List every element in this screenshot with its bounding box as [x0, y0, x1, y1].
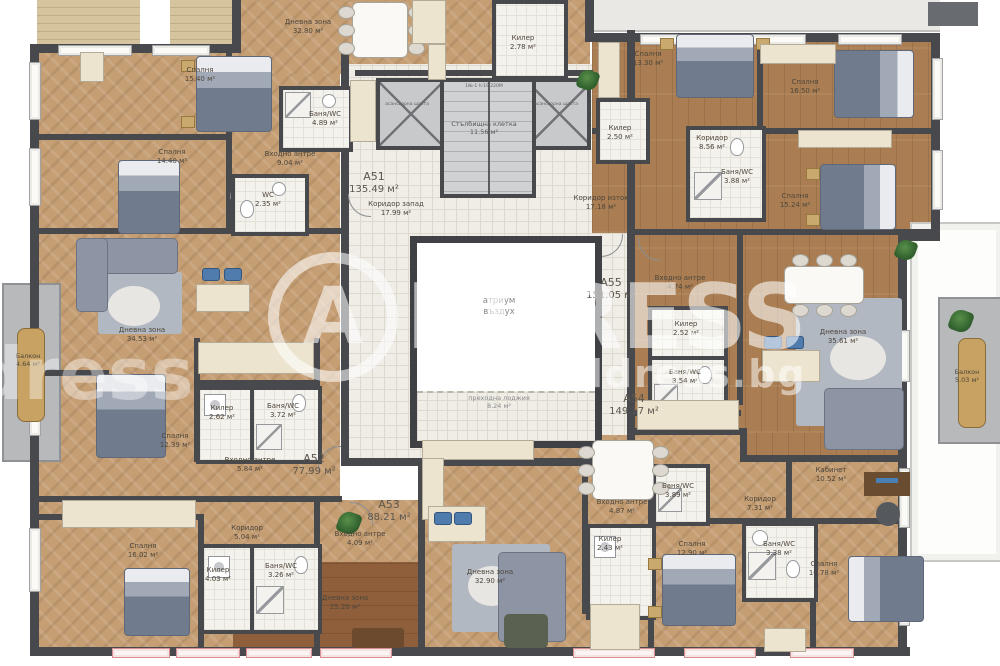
wardrobe: [62, 500, 196, 528]
sofa: [76, 238, 108, 312]
bar-stool: [224, 268, 242, 281]
chair: [652, 446, 669, 459]
chair: [792, 304, 809, 317]
room-label: Балкон5.03 м²: [942, 368, 992, 385]
room-label: Килер2.52 м²: [648, 320, 724, 338]
nightstand: [648, 606, 662, 618]
room-label: Дневна зона32.90 м²: [452, 568, 528, 586]
elevator-label: асансьорна шахта: [529, 102, 583, 107]
room-label: Спалня14.40 м²: [134, 148, 210, 166]
nightstand: [648, 558, 662, 570]
chair: [792, 254, 809, 267]
elevator-label: асансьорна шахта: [380, 102, 434, 107]
stair-label: Стълбищна клетка11.56 м²: [444, 120, 524, 137]
rug-accent: [108, 286, 160, 326]
armchair: [504, 614, 548, 648]
sink: [322, 94, 336, 108]
room-label: Входно антре4.74 м²: [642, 274, 718, 292]
window: [320, 648, 392, 658]
side-table: [352, 628, 404, 648]
chair: [578, 446, 595, 459]
wardrobe: [764, 628, 806, 652]
nightstand: [181, 116, 195, 128]
bed: [662, 554, 736, 626]
room-label: Спалня12.39 м²: [137, 432, 213, 450]
console: [196, 284, 250, 312]
chair: [652, 464, 669, 477]
bar-stool: [202, 268, 220, 281]
room-label: Спалня16.02 м²: [105, 542, 181, 560]
bar-stool: [764, 336, 782, 349]
window: [932, 58, 943, 120]
room-label: Кабинет10.52 м²: [793, 466, 869, 484]
chair: [578, 464, 595, 477]
chair: [338, 42, 355, 55]
console: [762, 350, 820, 382]
wardrobe: [760, 44, 836, 64]
desk-chair: [876, 502, 900, 526]
window: [246, 648, 312, 658]
bar-stool: [454, 512, 472, 525]
apartment-label-a51: A51135.49 м²: [329, 170, 419, 196]
room-label: Коридор8.56 м²: [674, 134, 750, 152]
room-label: Баня/WC3.72 м²: [245, 402, 321, 420]
room-label: Дневна зона34.53 м²: [104, 326, 180, 344]
roof-deck: [37, 0, 233, 46]
chair: [840, 304, 857, 317]
loggia-label: преходна лоджия8.24 м²: [459, 394, 539, 411]
room-label: Входно антре4.09 м²: [322, 530, 398, 548]
shaft-block: [928, 2, 978, 26]
room-label: Спалня12.90 м²: [654, 540, 730, 558]
room-label: Коридор запад17.99 м²: [358, 200, 434, 218]
window: [112, 648, 170, 658]
room-label: Коридор5.04 м²: [209, 524, 285, 542]
kitchen-counter: [422, 440, 534, 460]
floor-plan: 1№-1 h:19,220М Стълбищна клетка11.56 м² …: [0, 0, 1000, 666]
chair: [816, 254, 833, 267]
window: [932, 150, 943, 210]
sun-lounger: [17, 328, 45, 422]
window: [684, 648, 756, 658]
shower: [256, 424, 282, 450]
room-label: Баня/WC3.38 м²: [741, 540, 817, 558]
nightstand: [806, 168, 820, 180]
window: [176, 648, 240, 658]
room-label: Баня/WC3.89 м²: [640, 482, 716, 500]
atrium-label: атриумвъздух: [459, 296, 539, 318]
wardrobe: [798, 130, 892, 148]
wall: [232, 0, 241, 53]
room-label: Дневна зона32.80 м²: [270, 18, 346, 36]
chair: [840, 254, 857, 267]
bed: [118, 160, 180, 234]
kitchen-counter: [198, 342, 314, 374]
room-label: Килер2.43 м²: [572, 535, 648, 553]
sofa: [824, 388, 904, 450]
room-label: Спалня15.24 м²: [757, 192, 833, 210]
room-label: Баня/WC3.26 м²: [243, 562, 319, 580]
wardrobe: [80, 52, 104, 82]
apartment-label-a53: A5388.21 м²: [344, 498, 434, 524]
chair: [578, 482, 595, 495]
room-label: Входно антре4.87 м²: [584, 498, 660, 516]
kitchen-counter: [428, 44, 446, 80]
room-label: Входно антре9.04 м²: [252, 150, 328, 168]
room-label: Килер2.50 м²: [582, 124, 658, 142]
nightstand: [660, 38, 674, 50]
window: [29, 528, 41, 592]
room-label: Коридор изток17.18 м²: [563, 194, 639, 212]
wardrobe: [590, 604, 640, 650]
bed: [834, 50, 914, 118]
room-label: Входно антре5.84 м²: [212, 456, 288, 474]
room-label: Баня/WC3.88 м²: [699, 168, 775, 186]
dining-table: [784, 266, 864, 304]
shower: [256, 586, 284, 614]
staircase: [440, 78, 536, 198]
room-label: Баня/WC4.89 м²: [287, 110, 363, 128]
window: [838, 34, 902, 45]
apartment-label-a54: A54149.17 м²: [589, 392, 679, 418]
room-label: WC2.35 м²: [230, 191, 306, 209]
atrium: [410, 236, 602, 448]
window: [29, 62, 41, 120]
nightstand: [806, 214, 820, 226]
room-label: Коридор7.31 м²: [722, 495, 798, 513]
wall: [740, 455, 905, 462]
room-label: Балкон4.64 м²: [3, 352, 53, 369]
window: [29, 148, 41, 206]
wall: [737, 235, 743, 405]
elevator-shaft: [376, 78, 446, 150]
desk: [864, 472, 910, 496]
dining-table: [352, 2, 408, 58]
room-label: Дневна зона25.20 м²: [307, 594, 383, 612]
wall: [37, 134, 232, 140]
room-label: Килер2.78 м²: [485, 34, 561, 52]
bar-stool: [786, 336, 804, 349]
stair-note: 1№-1 h:19,220М: [439, 84, 529, 89]
room-label: Спалня16.78 м²: [786, 560, 862, 578]
top-terrace-strip: [592, 0, 940, 32]
bar-stool: [434, 512, 452, 525]
room-label: Спалня16.50 м²: [767, 78, 843, 96]
laptop: [876, 478, 898, 483]
room-label: Спалня15.40 м²: [162, 66, 238, 84]
chair: [816, 304, 833, 317]
window: [152, 45, 210, 56]
room-label: Спалня13.30 м²: [610, 50, 686, 68]
room-label: Баня/WC3.54 м²: [647, 368, 723, 386]
bed: [676, 34, 754, 98]
deck-gap: [140, 0, 170, 46]
room-label: Дневна зона35.61 м²: [805, 328, 881, 346]
kitchen-counter: [412, 0, 446, 44]
